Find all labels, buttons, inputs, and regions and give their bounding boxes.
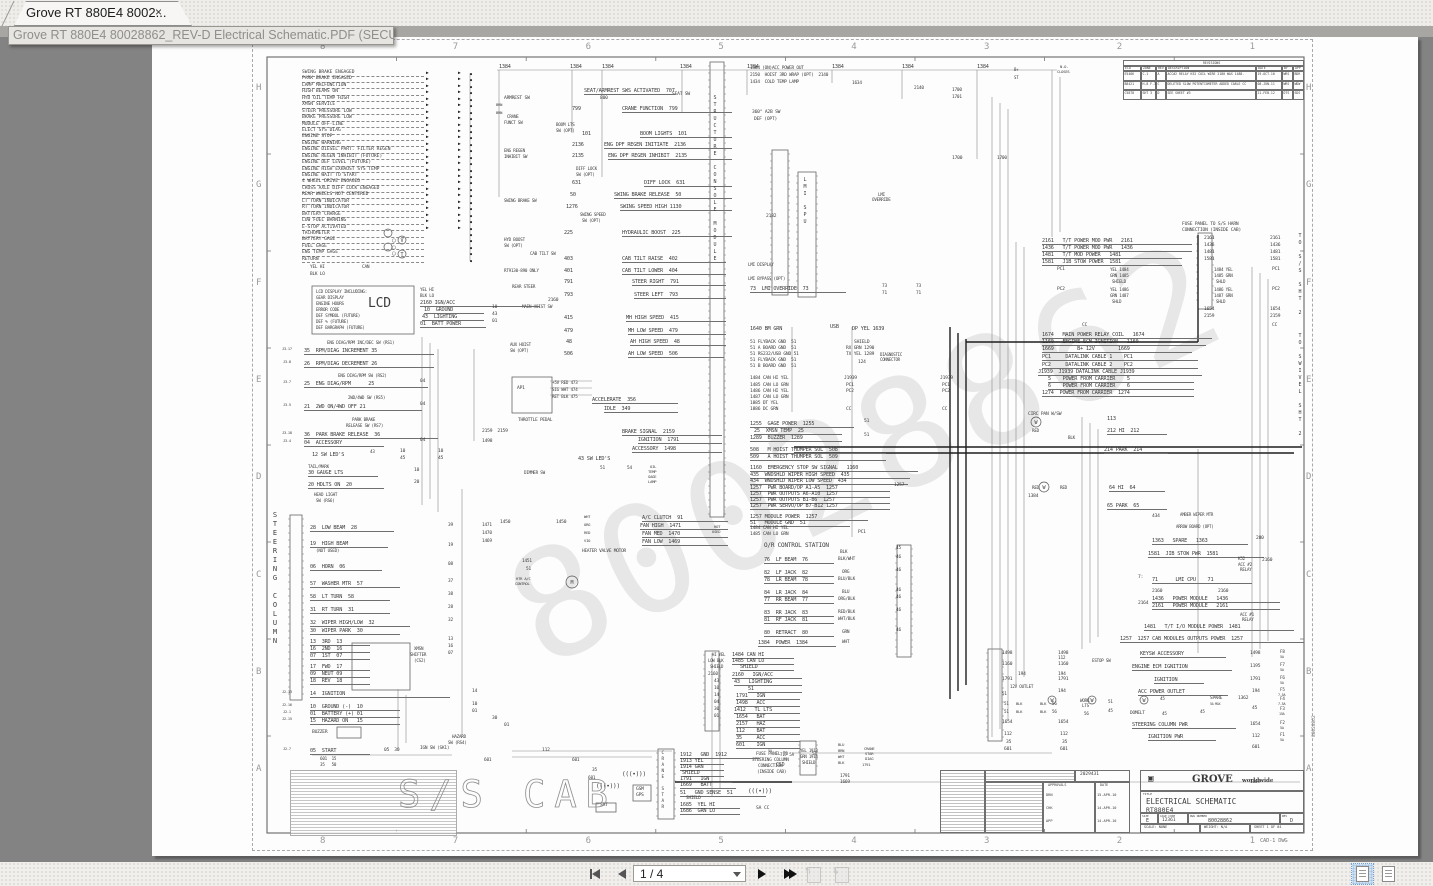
schematic-label: 81 RF JACK 81 bbox=[764, 618, 834, 624]
bus-dot: ● bbox=[470, 176, 472, 180]
schematic-label: 1384 bbox=[832, 65, 844, 70]
schematic-label: 101 bbox=[582, 132, 591, 137]
schematic-label: 08 bbox=[448, 563, 453, 567]
schematic-label: 1581 bbox=[1270, 258, 1280, 263]
led-arrow-icon: ▶ bbox=[458, 207, 461, 212]
schematic-label: 601 bbox=[572, 759, 579, 763]
schematic-label: IGNITION PWR bbox=[1148, 735, 1216, 741]
schematic-label: 214 PARK 214 bbox=[1104, 448, 1168, 454]
schematic-label: 1791 bbox=[1250, 678, 1260, 683]
last-page-button[interactable] bbox=[778, 865, 802, 883]
schematic-label: 601 bbox=[1252, 746, 1260, 751]
schematic-label: 1885 DT YEL bbox=[750, 402, 778, 407]
schematic-label: 1384 bbox=[1028, 495, 1038, 500]
svg-text:W: W bbox=[1090, 698, 1094, 704]
zone-letter-right: A bbox=[1306, 764, 1311, 774]
schematic-label: 50 bbox=[570, 193, 576, 198]
schematic-label: O/R CONTROL STATION bbox=[764, 543, 829, 549]
zone-number-bottom: 4 bbox=[851, 836, 856, 846]
schematic-label: 1581 bbox=[1204, 258, 1214, 263]
zone-letter-left: E bbox=[256, 375, 261, 385]
schematic-label: 1471 bbox=[482, 524, 492, 528]
schematic-label: 54 bbox=[627, 467, 632, 471]
schematic-label: SHLD bbox=[1112, 300, 1121, 304]
led-arrow-icon: ▶ bbox=[426, 98, 429, 103]
schematic-label: 78 LR BEAM 78 bbox=[764, 578, 834, 584]
vertical-label: STEERING COLUMN bbox=[271, 511, 278, 646]
revisions-header: REVISIONS bbox=[1203, 62, 1220, 65]
schematic-label: (((•))) bbox=[622, 772, 646, 778]
led-arrow-icon: ▶ bbox=[458, 98, 461, 103]
schematic-label: 64 HI 64 bbox=[1109, 486, 1165, 492]
zone-letter-left: D bbox=[256, 472, 261, 482]
schematic-label: 1791 bbox=[862, 763, 870, 767]
bus-dot: ● bbox=[470, 131, 472, 135]
schematic-label: DIAG bbox=[865, 757, 873, 761]
pdf-toolbar: 1 / 4 ↰ ↳ bbox=[0, 862, 1433, 886]
schematic-label: 01 bbox=[492, 320, 497, 325]
schematic-label: 2159 bbox=[1204, 315, 1214, 320]
schematic-label: 43 bbox=[714, 680, 719, 684]
grove-logo-icon: ▣ bbox=[1148, 775, 1153, 784]
schematic-label: WHT bbox=[838, 755, 844, 759]
schematic-label: 2160 bbox=[548, 299, 558, 304]
schematic-label: 07 bbox=[448, 652, 453, 656]
previous-page-icon bbox=[618, 869, 626, 879]
zone-letter-right: E bbox=[1306, 375, 1311, 385]
led-arrow-icon: ▶ bbox=[458, 130, 461, 135]
schematic-label: RELEASE SW (RS7) bbox=[346, 424, 383, 428]
schematic-label: 5A bbox=[1280, 656, 1284, 659]
page-number-value: 1 / 4 bbox=[640, 867, 663, 881]
approval-date: 14-APR-10 bbox=[1097, 820, 1116, 824]
schematic-label: 194 bbox=[1252, 690, 1260, 695]
schematic-label: 45 bbox=[1252, 707, 1257, 712]
bus-dot: ● bbox=[470, 137, 472, 141]
tab-close-icon[interactable]: × bbox=[155, 5, 162, 19]
schematic-label: DEF % (FUTURE) bbox=[316, 320, 349, 324]
schematic-label: 14 IGNITION bbox=[310, 692, 450, 698]
schematic-label: WHT bbox=[842, 641, 849, 645]
schematic-label: 46 bbox=[896, 596, 901, 600]
led-arrow-icon: ▶ bbox=[458, 111, 461, 116]
schematic-label: 1700 bbox=[997, 157, 1007, 161]
schematic-label: 1160 bbox=[1058, 663, 1068, 668]
schematic-label: BLK bbox=[1016, 710, 1022, 714]
schematic-label: 1484 YEL bbox=[1214, 268, 1233, 272]
schematic-label: 80 RETRACT 80 bbox=[764, 631, 834, 637]
schematic-label: A/C CLUTCH 91 bbox=[642, 516, 728, 522]
schematic-label: 2WD/4WD SW (RS5) bbox=[348, 396, 385, 400]
led-arrow-icon: ▶ bbox=[426, 136, 429, 141]
schematic-label: SA bbox=[756, 807, 761, 812]
schematic-label: F6 bbox=[1280, 676, 1285, 680]
zone-letter-right: F bbox=[1306, 278, 1311, 288]
previous-view-button[interactable]: ↰ bbox=[804, 865, 824, 883]
revisions-col-header: DATE bbox=[1258, 67, 1266, 70]
schematic-label: 51 bbox=[1004, 710, 1009, 714]
schematic-label: 51 bbox=[1002, 692, 1007, 696]
schematic-label: 1384 bbox=[602, 65, 614, 70]
zone-number-top: 6 bbox=[586, 42, 591, 52]
schematic-label: 1289 BUZZER 1289 bbox=[750, 436, 842, 442]
schematic-label: 800 bbox=[600, 97, 608, 102]
schematic-label: J3-5 bbox=[283, 404, 291, 408]
schematic-label: LAMP bbox=[648, 480, 656, 484]
schematic-label: 43 bbox=[370, 450, 375, 454]
schematic-label: J1939 bbox=[844, 377, 857, 382]
schematic-label: 2161 POWER MODULE 2161 bbox=[1152, 604, 1280, 610]
schematic-label: 1481 bbox=[1204, 251, 1214, 256]
schematic-label: 1669 BATT bbox=[680, 783, 736, 789]
approval-role: DRN bbox=[1046, 794, 1053, 798]
led-arrow-icon: ▶ bbox=[458, 188, 461, 193]
schematic-label: J3-18 bbox=[282, 432, 292, 436]
bus-dot: ● bbox=[470, 99, 472, 103]
schematic-label: GRN 1914 bbox=[800, 755, 818, 759]
schematic-label: 45 bbox=[1108, 709, 1113, 713]
schematic-label: CAN bbox=[362, 266, 369, 270]
schematic-label: 1436 bbox=[1270, 244, 1280, 249]
schematic-label: +5V RED 473 bbox=[552, 381, 578, 385]
schematic-label: SW (OPT) bbox=[510, 349, 529, 353]
previous-page-button[interactable] bbox=[614, 865, 630, 883]
bus-dot: ● bbox=[470, 260, 472, 264]
schematic-label: 10 bbox=[438, 450, 443, 455]
schematic-label: 1484 CAN HI YEL bbox=[750, 527, 789, 532]
schematic-label: 43 LIGHTING bbox=[734, 680, 802, 686]
schematic-label: GSM bbox=[636, 788, 644, 793]
revisions-value: DTS bbox=[1284, 92, 1290, 95]
bus-dot: ● bbox=[470, 86, 472, 90]
bus-dot: ● bbox=[470, 73, 472, 77]
revisions-col-header: ECO bbox=[1125, 67, 1131, 70]
schematic-label: F5 bbox=[1280, 688, 1285, 692]
schematic-label: BRN bbox=[496, 103, 502, 107]
schematic-label: 32 bbox=[448, 619, 453, 623]
schematic-label: PC1 bbox=[1272, 268, 1280, 273]
schematic-label: CC bbox=[1272, 324, 1277, 329]
revisions-col-header: DESCRIPTION bbox=[1168, 67, 1189, 70]
schematic-label: 06 HORN 06 bbox=[310, 565, 382, 571]
approval-role: CHK bbox=[1046, 807, 1053, 811]
zone-number-top: 2 bbox=[1117, 42, 1122, 52]
weight-value: WEIGHT: N/A bbox=[1204, 826, 1227, 830]
schematic-label: ORG bbox=[584, 523, 590, 527]
schematic-label: PC2 bbox=[1057, 288, 1065, 293]
revisions-value: H-8 F-3 bbox=[1143, 83, 1156, 86]
bus-dot: ● bbox=[470, 234, 472, 238]
led-arrow-icon: ▶ bbox=[426, 78, 429, 83]
schematic-label: 1791 bbox=[840, 775, 850, 779]
schematic-label: USB bbox=[830, 325, 839, 330]
schematic-label: 51 bbox=[1108, 700, 1113, 704]
schematic-label: 16 bbox=[448, 645, 453, 649]
title-block-cell bbox=[985, 782, 1043, 833]
revisions-value: C bbox=[1158, 83, 1160, 86]
schematic-label: B+ bbox=[1014, 68, 1018, 72]
schematic-label: AP1 bbox=[517, 387, 525, 392]
schematic-label: 434 bbox=[1152, 515, 1160, 520]
schematic-label: F8 bbox=[1280, 650, 1285, 654]
schematic-label: CC bbox=[764, 807, 769, 812]
schematic-label: 32 WIPER HIGH/LOW 32 bbox=[310, 621, 410, 627]
next-page-button[interactable] bbox=[754, 865, 770, 883]
tab-bar: Grove RT 880E4 8002... × bbox=[0, 0, 1433, 26]
schematic-label: RED/BLK bbox=[838, 611, 855, 615]
schematic-label: 2161 bbox=[1204, 237, 1214, 242]
schematic-label: 38 bbox=[448, 593, 453, 597]
schematic-label: F1 bbox=[1280, 733, 1285, 737]
schematic-label: 5A bbox=[768, 750, 772, 754]
bus-dot: ● bbox=[470, 208, 472, 212]
schematic-label: AH HIGH SPEED 48 bbox=[630, 340, 726, 346]
schematic-label: 401 bbox=[564, 269, 573, 274]
schematic-label: RELAY bbox=[1242, 618, 1254, 622]
schematic-label: 14 bbox=[714, 694, 719, 698]
schematic-label: 10 bbox=[400, 450, 405, 455]
schematic-label: 18 REV 18 bbox=[310, 679, 370, 685]
schematic-label: 2164 bbox=[1138, 602, 1148, 607]
schematic-label: 28 LOW BEAM 28 bbox=[310, 526, 394, 532]
indicator-row: ENGINE DEF LEVEL (FUTURE) bbox=[302, 161, 424, 167]
schematic-label: 112 bbox=[1252, 735, 1260, 740]
schematic-label: J3-8 bbox=[283, 361, 291, 365]
schematic-label: 212 HI 212 bbox=[1107, 429, 1167, 435]
schematic-label: PC1 bbox=[942, 384, 950, 389]
schematic-label: DEF (OPT) bbox=[754, 118, 777, 123]
next-view-button[interactable]: ↳ bbox=[832, 865, 852, 883]
schematic-label: 12V OUTLET bbox=[1010, 685, 1033, 689]
led-arrow-icon: ▶ bbox=[458, 78, 461, 83]
schematic-label: BLK bbox=[1016, 702, 1022, 706]
zone-letter-left: H bbox=[256, 83, 261, 93]
schematic-label: 1654 bbox=[1058, 721, 1068, 726]
schematic-label: CC bbox=[942, 408, 947, 413]
schematic-label: BLK LO bbox=[310, 273, 325, 277]
schematic-label: 71 LMI CPU 71 bbox=[1152, 578, 1252, 584]
schematic-label: 1484 CAN HI YEL bbox=[750, 377, 789, 382]
schematic-label: 31 RT TURN 31 bbox=[310, 608, 390, 614]
schematic-label: BRN bbox=[838, 749, 844, 753]
schematic-label: 1485 GRN bbox=[1214, 274, 1233, 278]
revisions-value: C5878 bbox=[1125, 92, 1135, 95]
schematic-label: BLU bbox=[838, 743, 844, 747]
bus-dot: ● bbox=[470, 189, 472, 193]
schematic-label: LOW BLK bbox=[708, 659, 723, 663]
led-arrow-icon: ▶ bbox=[426, 91, 429, 96]
led-arrow-icon: ▶ bbox=[458, 143, 461, 148]
schematic-label: 26 RPM/DIAG DECREMENT 26 bbox=[304, 362, 434, 368]
schematic-label: 1469 bbox=[482, 540, 492, 544]
bus-dot: ● bbox=[470, 228, 472, 232]
schematic-label: 1481 T/T I/O MODULE POWER 1481 bbox=[1144, 625, 1294, 631]
schematic-label: 20 HDLTS ON 20 bbox=[308, 483, 384, 489]
schematic-label: XMSN bbox=[414, 647, 423, 651]
schematic-label: 73 LMI OVERRIDE 73 bbox=[750, 287, 846, 293]
brand-suffix: worldwide bbox=[1242, 779, 1273, 785]
schematic-label: 717 5A bbox=[780, 753, 794, 757]
svg-text:W: W bbox=[1034, 420, 1038, 426]
schematic-label: 2140 bbox=[914, 87, 924, 91]
zone-number-top: 3 bbox=[984, 42, 989, 52]
schematic-label: 2160 bbox=[1262, 559, 1272, 564]
schematic-label: 51 FLYBACK GND 51 bbox=[750, 341, 796, 346]
scrolling-page-layout-button[interactable] bbox=[1378, 864, 1399, 884]
schematic-label: ACCELERATE 356 bbox=[592, 398, 678, 404]
bus-dot: ● bbox=[470, 157, 472, 161]
schematic-label: 04 bbox=[714, 701, 719, 705]
schematic-label: 51 A BOARD GND 51 bbox=[750, 347, 796, 352]
zone-letter-left: F bbox=[256, 278, 261, 288]
schematic-label: HAZARD bbox=[452, 735, 466, 739]
schematic-label: ENG DIAG/RPM INC/DEC SW (RS1) bbox=[327, 341, 394, 345]
first-page-button[interactable] bbox=[584, 865, 606, 883]
schematic-label: 2160 bbox=[708, 673, 718, 677]
revisions-value: BDR bbox=[1295, 73, 1301, 76]
last-page-icon2 bbox=[789, 869, 797, 879]
schematic-label: F2 bbox=[1280, 721, 1285, 725]
schematic-label: DIFF LOCK bbox=[576, 167, 597, 171]
schematic-label: ENGINE ECM IGNITION bbox=[1132, 665, 1232, 671]
schematic-label: 601 bbox=[1004, 748, 1012, 753]
schematic-label: HYD BOOST bbox=[504, 238, 525, 242]
schematic-label: CAB TILT SW bbox=[530, 252, 556, 256]
drawing-title: ELECTRICAL SCHEMATIC bbox=[1146, 798, 1236, 806]
schematic-label: SHIELD bbox=[854, 341, 869, 346]
bus-dot: ● bbox=[470, 247, 472, 251]
schematic-label: ARMREST SW bbox=[504, 97, 530, 102]
schematic-label: BOOM LTS bbox=[556, 123, 575, 127]
schematic-label: SW (OPT) bbox=[582, 219, 601, 223]
approval-role: APP bbox=[1046, 820, 1053, 824]
zone-letter-right: D bbox=[1306, 472, 1311, 482]
title-block-text: DWG NUMBER bbox=[1190, 815, 1207, 818]
schematic-label: 01 bbox=[504, 724, 509, 729]
revisions-value: 21-FEB-12 bbox=[1258, 92, 1275, 95]
schematic-label: 56 bbox=[1052, 710, 1057, 714]
cage-code: 12361 bbox=[1162, 819, 1176, 824]
schematic-label: LCD bbox=[368, 297, 391, 310]
led-arrow-icon: ▶ bbox=[426, 227, 429, 232]
schematic-label: 5A bbox=[1280, 727, 1284, 730]
single-page-layout-button[interactable] bbox=[1352, 864, 1373, 884]
schematic-label: WHT bbox=[584, 515, 590, 519]
schematic-label: ARROW BOARD (OPT) bbox=[1176, 525, 1214, 529]
schematic-label: 1450 bbox=[556, 521, 566, 526]
schematic-label: 1669 bbox=[840, 781, 850, 785]
schematic-label: 39 bbox=[448, 524, 453, 528]
schematic-label: 10 bbox=[492, 306, 497, 311]
page-number-select[interactable]: 1 / 4 bbox=[633, 865, 746, 882]
pdf-viewer-canvas: 80028862 MVTWWWWW 8877665544332211HHGGFF… bbox=[0, 26, 1433, 862]
indicator-row: ENG TEMP GAGE bbox=[302, 251, 424, 257]
schematic-label: 2159 bbox=[1270, 315, 1280, 320]
schematic-label: 5A bbox=[1280, 739, 1284, 742]
revisions-value: SHT 3 bbox=[1143, 92, 1153, 95]
margin-dwg-number: 80028862 bbox=[1312, 715, 1317, 737]
schematic-label: 280 bbox=[1256, 537, 1264, 542]
led-arrow-icon: ▶ bbox=[426, 156, 429, 161]
schematic-label: BLK bbox=[1068, 436, 1075, 440]
schematic-label: 1274 POWER FROM CARRIER 1274 bbox=[1042, 391, 1194, 397]
zone-letter-left: B bbox=[256, 667, 261, 677]
schematic-label: CC bbox=[1082, 324, 1087, 329]
schematic-label: 2160 bbox=[1218, 590, 1228, 595]
schematic-label: YEL HI bbox=[310, 266, 325, 270]
led-arrow-icon: ▶ bbox=[426, 201, 429, 206]
schematic-label: SIG WHT 474 bbox=[552, 388, 578, 392]
scale-value: SCALE: NONE bbox=[1144, 826, 1167, 830]
schematic-label: 56 bbox=[1084, 712, 1089, 716]
schematic-label: ST bbox=[1014, 76, 1018, 80]
schematic-label: 1791 bbox=[1002, 678, 1012, 683]
schematic-label: 51 bbox=[600, 467, 605, 471]
led-arrow-icon: ▶ bbox=[426, 188, 429, 193]
schematic-label: 1640 BM GRN bbox=[750, 327, 782, 332]
schematic-label: 1384 bbox=[977, 65, 989, 70]
schematic-label: 45 bbox=[438, 457, 443, 462]
revisions-value: A bbox=[1158, 73, 1160, 76]
schematic-label: VIO bbox=[584, 539, 590, 543]
zone-number-top: 5 bbox=[718, 42, 723, 52]
schematic-label: 56 bbox=[1052, 702, 1057, 706]
zone-letter-left: C bbox=[256, 570, 261, 580]
schematic-label: SWING SPEED bbox=[580, 213, 606, 217]
schematic-label: 12 SW LED'S bbox=[312, 453, 344, 458]
schematic-label: 01 BATT POWER bbox=[420, 322, 486, 328]
sheet-value: SHEET 1 OF 04 bbox=[1254, 826, 1281, 830]
schematic-label: 71 bbox=[916, 292, 921, 296]
schematic-label: 2160 bbox=[1152, 590, 1162, 595]
led-arrow-icon: ▶ bbox=[458, 117, 461, 122]
schematic-label: 30 bbox=[714, 708, 719, 712]
schematic-label: 1436 bbox=[1204, 244, 1214, 249]
schematic-label: GRN 1485 bbox=[1110, 274, 1129, 278]
schematic-label: 479 bbox=[564, 329, 573, 334]
schematic-label: SHIELD bbox=[686, 797, 701, 801]
schematic-label: PC2 bbox=[846, 390, 854, 395]
schematic-label: 1485 CAN LO GRN bbox=[750, 384, 789, 389]
schematic-label: 506 bbox=[564, 352, 573, 357]
bus-dot: ● bbox=[470, 182, 472, 186]
schematic-label: BLK bbox=[1040, 702, 1046, 706]
schematic-label: PC1 bbox=[1057, 268, 1065, 273]
schematic-label: 01 bbox=[714, 715, 719, 719]
schematic-label: 1160 bbox=[1002, 663, 1012, 668]
zone-number-top: 4 bbox=[851, 42, 856, 52]
schematic-label: IGNITION bbox=[1154, 678, 1204, 684]
schematic-label: 1686 GRN LO bbox=[680, 809, 740, 815]
indicator-row: RT TURN INDICATOR bbox=[302, 206, 424, 212]
revisions-value: WRS bbox=[1284, 83, 1290, 86]
schematic-label: 43 bbox=[492, 313, 497, 318]
schematic-label: LCD DISPLAY INCLUDING: bbox=[316, 290, 367, 294]
schematic-label: 1487 GRN bbox=[1214, 294, 1233, 298]
schematic-label: STEER RIGHT 791 bbox=[632, 280, 726, 286]
schematic-label: F7 bbox=[1280, 663, 1285, 667]
schematic-label: 25 ENG DIAG/RPM 25 bbox=[304, 382, 428, 388]
schematic-label: 112 bbox=[1004, 733, 1012, 738]
schematic-label: 799 bbox=[572, 107, 581, 112]
next-page-icon bbox=[758, 869, 766, 879]
schematic-label: LMI DISPLAY bbox=[748, 263, 774, 267]
schematic-label: FUNCT SW bbox=[504, 121, 523, 125]
single-page-icon bbox=[1356, 866, 1369, 882]
led-arrow-icon: ▶ bbox=[426, 149, 429, 154]
schematic-label: MH LOW SPEED 479 bbox=[628, 329, 726, 335]
led-arrow-icon: ▶ bbox=[426, 194, 429, 199]
